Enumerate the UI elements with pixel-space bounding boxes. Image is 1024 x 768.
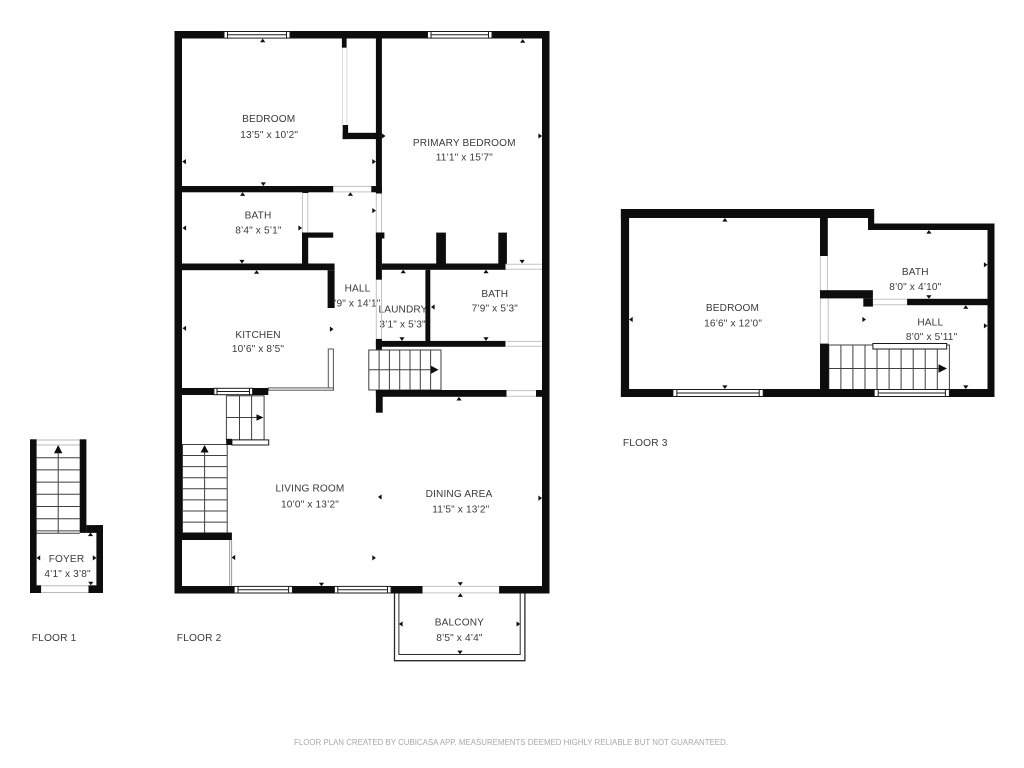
svg-text:10’6" x 8’5": 10’6" x 8’5" xyxy=(232,344,284,355)
svg-text:FLOOR 1: FLOOR 1 xyxy=(32,633,77,644)
svg-text:16’6" x 12’0": 16’6" x 12’0" xyxy=(704,319,762,330)
svg-text:PRIMARY BEDROOM: PRIMARY BEDROOM xyxy=(413,138,516,149)
svg-text:BATH: BATH xyxy=(481,289,508,300)
svg-text:KITCHEN: KITCHEN xyxy=(235,330,280,341)
svg-text:3’9" x 14’1": 3’9" x 14’1" xyxy=(328,299,380,310)
svg-text:FLOOR 3: FLOOR 3 xyxy=(623,438,668,449)
svg-text:BALCONY: BALCONY xyxy=(435,617,484,628)
svg-text:BATH: BATH xyxy=(245,211,272,222)
svg-text:11’1" x 15’7": 11’1" x 15’7" xyxy=(436,153,493,164)
svg-text:11’5" x 13’2": 11’5" x 13’2" xyxy=(432,505,489,516)
svg-text:HALL: HALL xyxy=(345,284,371,295)
svg-text:8’4" x 5’1": 8’4" x 5’1" xyxy=(235,226,282,237)
svg-text:BEDROOM: BEDROOM xyxy=(706,303,759,314)
svg-text:13’5" x 10’2": 13’5" x 10’2" xyxy=(240,130,298,141)
svg-text:10’0" x 13’2": 10’0" x 13’2" xyxy=(281,499,339,510)
svg-text:LIVING ROOM: LIVING ROOM xyxy=(276,484,345,495)
svg-text:FLOOR 2: FLOOR 2 xyxy=(177,633,222,644)
svg-text:4’1" x 3’8": 4’1" x 3’8" xyxy=(44,569,91,580)
svg-text:3’1" x 5’3": 3’1" x 5’3" xyxy=(379,319,426,330)
svg-text:FOYER: FOYER xyxy=(49,554,85,565)
svg-text:8’0" x 4’10": 8’0" x 4’10" xyxy=(889,282,941,293)
svg-text:BATH: BATH xyxy=(902,267,929,278)
svg-text:7’9" x 5’3": 7’9" x 5’3" xyxy=(472,303,519,314)
svg-text:HALL: HALL xyxy=(917,318,943,329)
svg-text:FLOOR PLAN CREATED BY CUBICASA: FLOOR PLAN CREATED BY CUBICASA APP. MEAS… xyxy=(294,738,728,747)
svg-text:8’0" x 5’11": 8’0" x 5’11" xyxy=(906,332,958,343)
svg-text:BEDROOM: BEDROOM xyxy=(242,114,295,125)
svg-text:LAUNDRY: LAUNDRY xyxy=(378,304,427,315)
svg-text:DINING AREA: DINING AREA xyxy=(426,489,493,500)
svg-text:8’5" x 4’4": 8’5" x 4’4" xyxy=(436,633,483,644)
